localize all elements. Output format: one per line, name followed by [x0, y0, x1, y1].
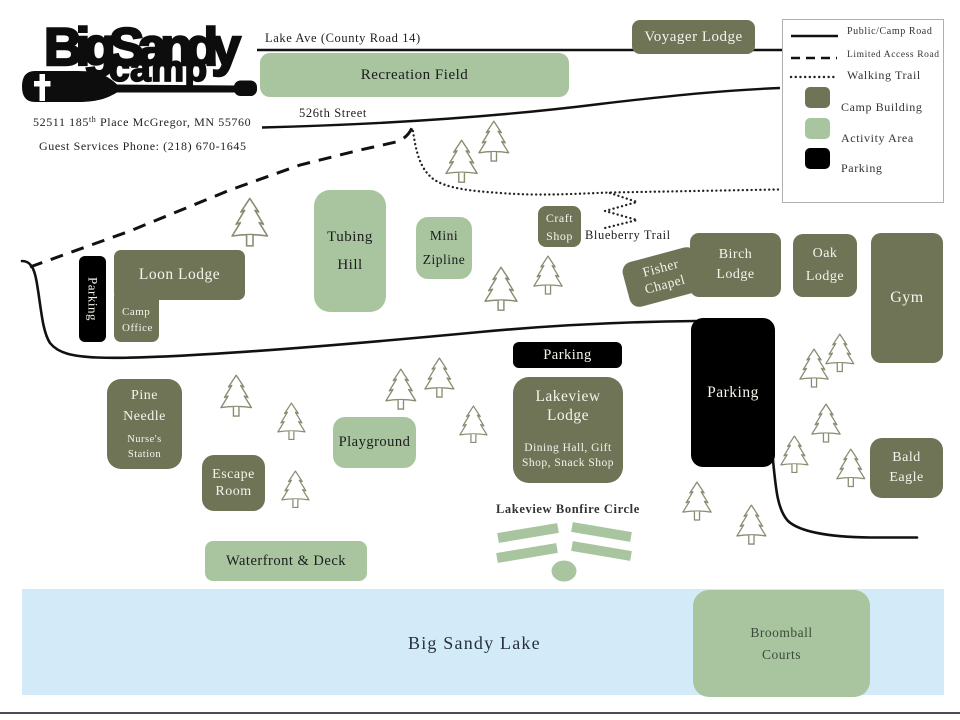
svg-text:camp: camp: [109, 48, 208, 89]
